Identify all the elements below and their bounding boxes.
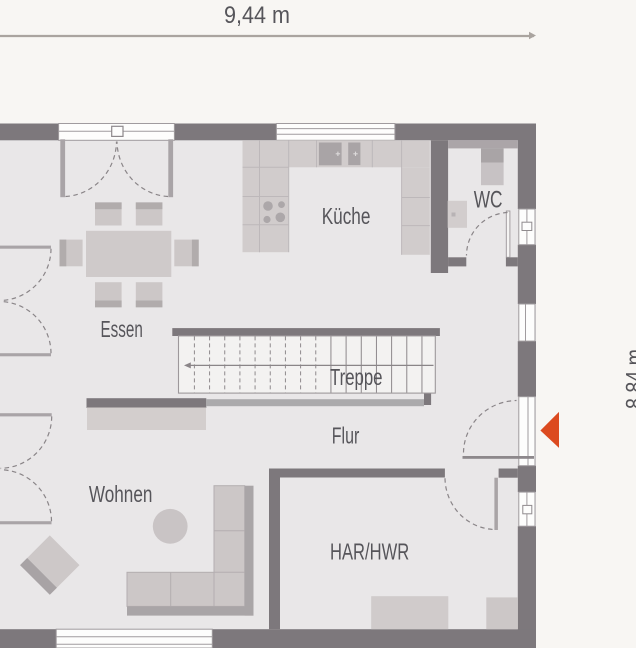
svg-text:8,84 m: 8,84 m	[622, 349, 636, 409]
svg-text:HAR/HWR: HAR/HWR	[330, 539, 409, 565]
svg-text:Essen: Essen	[101, 316, 143, 342]
svg-text:Küche: Küche	[322, 203, 371, 229]
svg-text:Treppe: Treppe	[330, 364, 383, 390]
svg-text:Flur: Flur	[332, 423, 360, 449]
svg-text:WC: WC	[474, 186, 503, 213]
svg-text:9,44 m: 9,44 m	[224, 2, 290, 29]
svg-text:Wohnen: Wohnen	[89, 481, 152, 507]
